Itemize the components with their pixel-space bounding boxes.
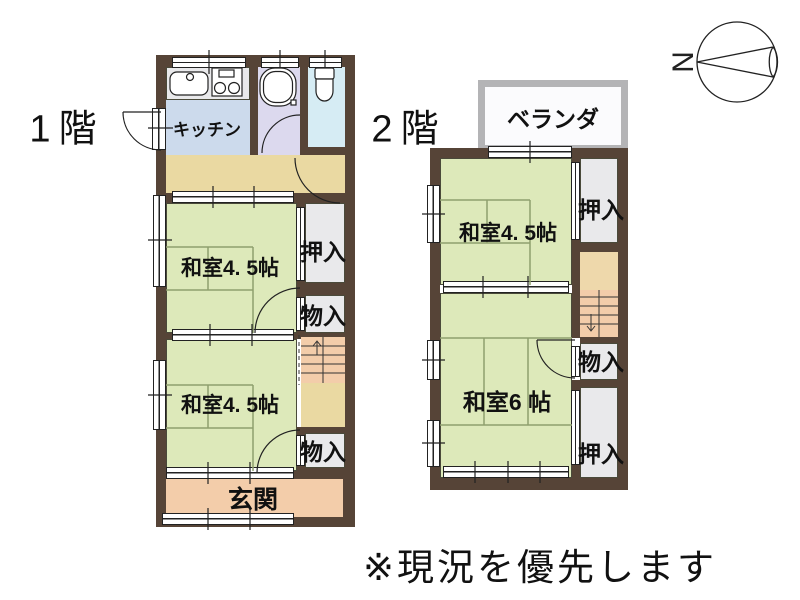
f1-stair-hall [301,383,345,427]
f1-wall-bath-toilet [300,55,308,155]
f1-window-room-mid-left [153,195,166,287]
compass: N [667,22,778,102]
f2-monoire-label: 物入 [578,343,624,377]
plan-linework: N [0,0,800,600]
f1-toilet-floor [308,67,345,147]
disclaimer-note: ※現況を優先します [363,537,717,591]
f2-window-left-low [427,420,440,467]
f2-fusuma-rooms [443,281,569,293]
f1-fusuma-hall-room [172,191,294,203]
f1-window-toilet-top [309,57,342,68]
f1-wall-right [345,55,355,527]
f1-monoire-low-label: 物入 [300,433,346,467]
f2-stairs [580,290,618,337]
f1-fusuma-room-room [172,329,294,341]
f1-window-kitchen-top [172,57,246,68]
f1-oshiire-label: 押入 [300,233,346,267]
f1-hallway [166,155,345,193]
f2-washitsu-6-label: 和室6 帖 [463,383,551,417]
f1-washitsu-mid-label: 和室4. 5帖 [181,252,279,282]
f1-kitchen-door [152,108,166,150]
f2-window-bottom [443,466,569,478]
f1-stairs [301,337,345,383]
f2-wall-bottom [430,478,628,490]
compass-needle [697,47,773,77]
f2-washitsu-45-label: 和室4. 5帖 [459,217,557,247]
compass-circle [697,22,777,102]
f2-veranda-door [488,146,572,158]
f2-window-left-mid [427,340,440,380]
compass-needle-tip [769,47,777,77]
floor2-title: 2階 [371,98,446,153]
f2-oshiire-top-label: 押入 [578,191,624,225]
f1-window-bath-top [261,57,299,68]
f1-wall-kitchen-bath [250,55,258,155]
f1-kitchen-label: キッチン [173,116,241,141]
f2-wall-below-oshiire-top [572,243,628,252]
f1-bathroom-floor [258,67,300,155]
f2-stair-landing [580,252,618,290]
f2-wall-below-monoire [572,380,628,387]
f2-window-left-up [427,185,440,243]
f1-genkan-label: 玄関 [228,480,278,516]
floorplan-canvas: N 1階 2階 キッチン 和室4. 5帖 和室4. 5帖 押入 物入 物入 玄関… [0,0,800,600]
f1-wall-oshiire-monoire [297,283,345,295]
f2-veranda-label: ベランダ [507,100,599,134]
f1-washitsu-low-label: 和室4. 5帖 [181,389,279,419]
f1-kitchen-counter [166,67,250,100]
f1-wall-genkan-right [343,471,355,521]
f1-window-room-low-left [153,360,166,430]
f1-fusuma-room-genkan [166,467,294,479]
compass-north-label: N [667,51,700,73]
f1-monoire-mid-label: 物入 [300,297,346,331]
f2-oshiire-bottom-label: 押入 [578,435,624,469]
floor1-title: 1階 [29,98,104,153]
